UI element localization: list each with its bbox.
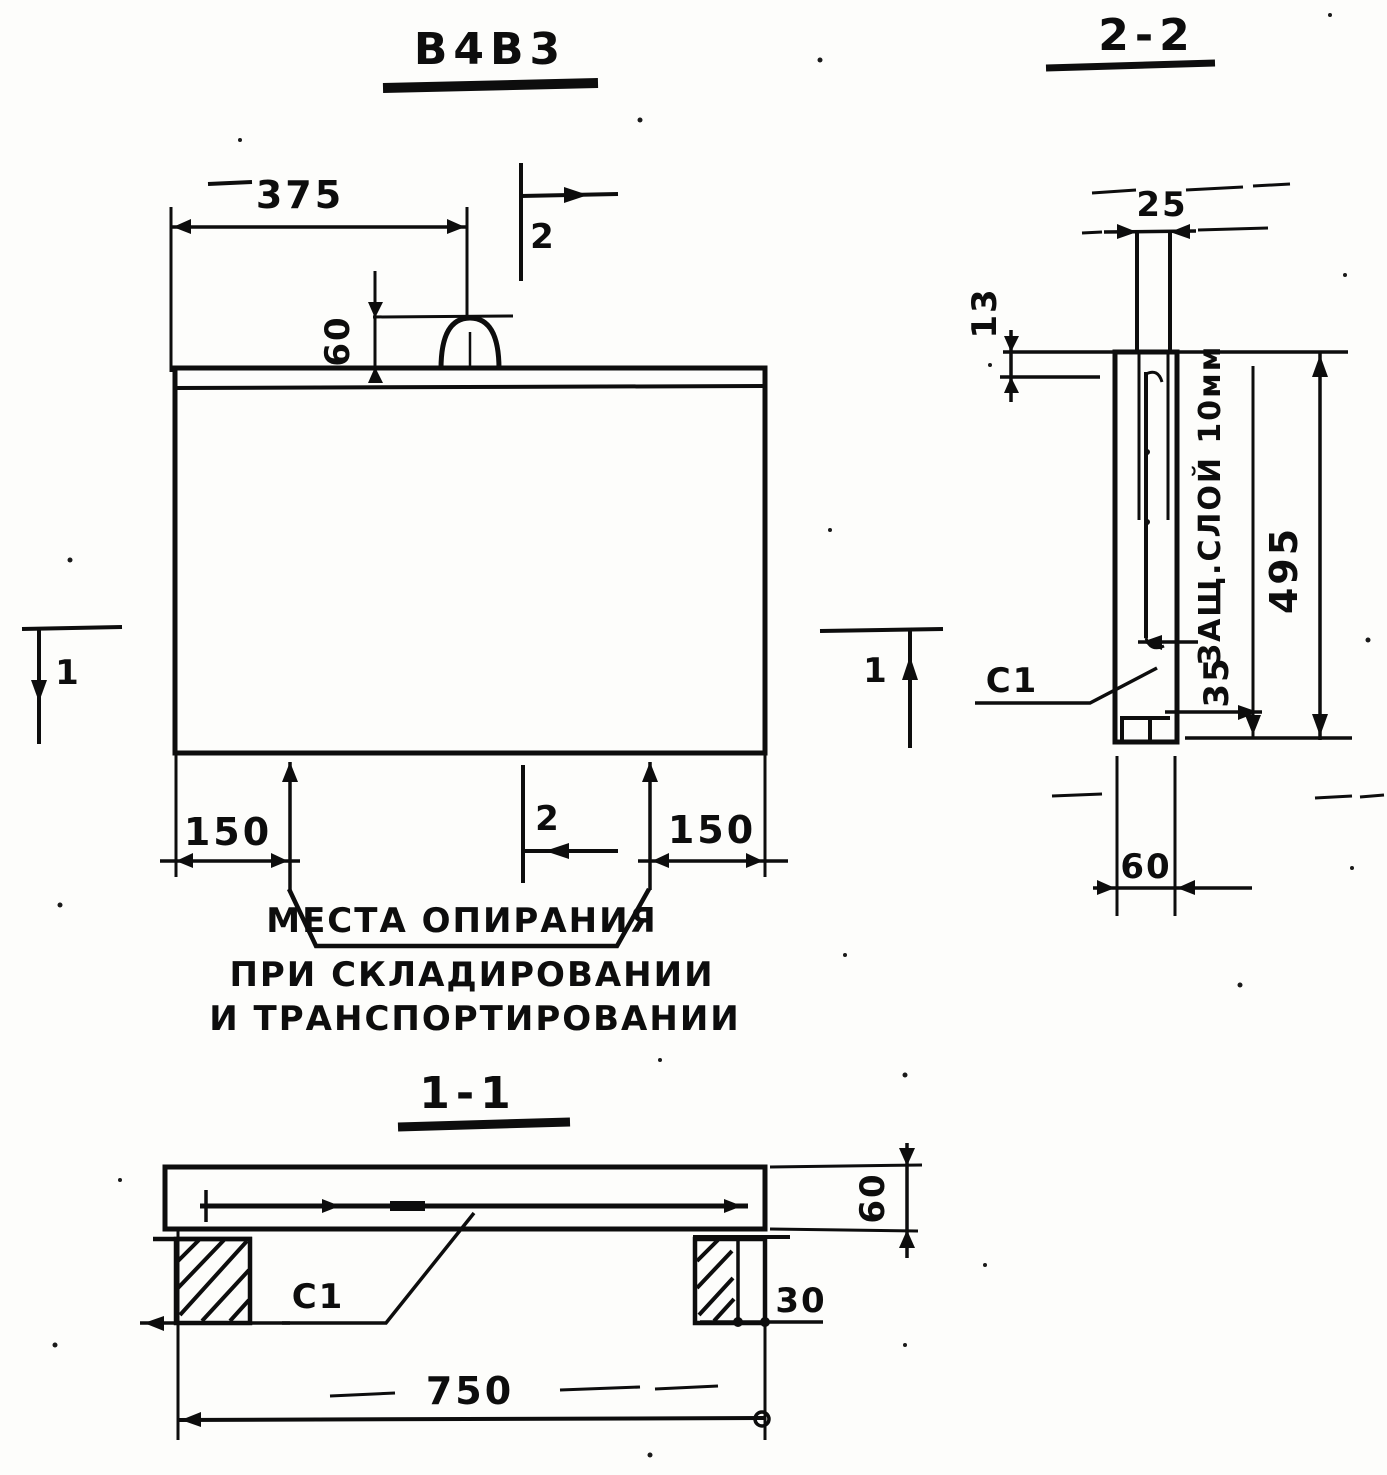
support-note-line1: МЕСТА ОПИРАНИЯ	[266, 901, 658, 941]
section-2-2-title: 2-2	[1098, 10, 1196, 61]
dim-13-label: 13	[965, 287, 1005, 338]
section-2-2-title-underline	[1046, 63, 1215, 68]
section-2-bottom-label: 2	[535, 799, 561, 839]
rebar-tick	[1144, 519, 1150, 525]
dim-375-arrow-right	[447, 219, 465, 234]
stray-dash	[330, 1393, 395, 1396]
support-note-line2: ПРИ СКЛАДИРОВАНИИ	[229, 955, 714, 995]
section-1-left-arrow-line	[22, 627, 122, 629]
stray-dash	[1315, 796, 1352, 798]
dim-495-label: 495	[1262, 526, 1306, 614]
dim-13-arrow-bottom	[1004, 377, 1019, 393]
stray-dash	[1186, 187, 1243, 190]
stray-dash	[1253, 184, 1290, 186]
section-2-top-arrowhead	[564, 187, 588, 203]
stray-dash	[655, 1386, 718, 1389]
dim-35-label: 35	[1197, 656, 1237, 707]
support-note-line3: И ТРАНСПОРТИРОВАНИИ	[209, 999, 740, 1039]
dim-375-arrow-left	[173, 219, 191, 234]
panel-outline	[175, 368, 765, 753]
stray-dash	[560, 1387, 640, 1390]
dim-750-label: 750	[426, 1369, 514, 1413]
section-1-1-title: 1-1	[419, 1068, 517, 1119]
dim-30-label: 30	[775, 1281, 826, 1321]
main-view-title-underline	[383, 83, 598, 88]
dim-60p-label: 60	[853, 1172, 893, 1223]
dim-495-arrow-bottom	[1312, 714, 1328, 736]
dim-150-left-label: 150	[184, 810, 272, 854]
stray-dash	[208, 182, 252, 184]
section-1-right-arrow-line	[820, 629, 943, 631]
dim-25-label: 25	[1136, 185, 1187, 225]
dim-60p-arrow-top	[899, 1148, 915, 1166]
rebar-tick	[1144, 449, 1150, 455]
section-1-1-view: 1-1 С1	[140, 1068, 922, 1440]
support-right-hatch	[697, 1240, 734, 1321]
support-right-up-arrow	[642, 762, 658, 782]
dim-25-arrow-right	[1170, 224, 1190, 239]
section-1-left-label: 1	[55, 653, 81, 693]
dim-60p-ext-top	[770, 1165, 922, 1167]
dim-60p-ext-bottom	[770, 1229, 918, 1231]
dim-60s-arrow-right	[1177, 880, 1195, 895]
rebar-c1-label-1-1: С1	[292, 1277, 345, 1317]
dim-13-arrow-top	[1004, 336, 1019, 352]
support-left-hatch	[178, 1240, 249, 1321]
panel-top-edge-line	[175, 386, 765, 388]
dim-750-arrow-left	[181, 1412, 201, 1427]
section-1-left-arrowhead	[31, 680, 47, 702]
rebar-arrowhead-b	[724, 1199, 742, 1213]
dim-60-ext-top	[373, 316, 513, 317]
dim-60s-arrow-left	[1097, 880, 1115, 895]
dim-60p-arrow-bottom	[899, 1230, 915, 1248]
dim-150-right-arrow-a	[652, 853, 669, 868]
section-1-right-label: 1	[863, 651, 889, 691]
dim-150-left-arrow-b	[271, 853, 288, 868]
section-2-bottom-arrowhead	[545, 843, 569, 859]
support-left-up-arrow	[282, 762, 298, 782]
dim-150-left-arrow-a	[176, 853, 193, 868]
dim-375-label: 375	[256, 173, 344, 217]
rebar-c1-top-hook	[1146, 372, 1162, 382]
blueprint-svg: В4В3 375 60 2 2 1	[0, 0, 1387, 1475]
dim-35-arrow-bottom	[1245, 715, 1261, 735]
dim-60-label: 60	[318, 315, 358, 366]
dim-25-ext-dash-right	[1198, 228, 1268, 230]
dim-25-ext-dash-left	[1082, 232, 1102, 233]
main-view: В4В3 375 60 2 2 1	[22, 24, 943, 1039]
stray-dash	[1052, 794, 1102, 796]
dim-150-right-arrow-b	[746, 853, 763, 868]
dim-25-arrow-left	[1117, 224, 1137, 239]
rebar-arrowhead-a	[322, 1199, 340, 1213]
stray-dash	[1092, 190, 1136, 193]
main-view-title: В4В3	[414, 24, 566, 75]
blueprint-sheet: В4В3 375 60 2 2 1	[0, 0, 1387, 1475]
dim-60s-label: 60	[1120, 847, 1171, 887]
dim-495-arrow-top	[1312, 355, 1328, 377]
section-1-1-title-underline	[398, 1122, 570, 1127]
rebar-c1-label-2-2: С1	[986, 661, 1039, 701]
dim-150-right-label: 150	[668, 808, 756, 852]
support-left-bottom-tick	[144, 1316, 164, 1331]
stray-dash	[1360, 795, 1384, 797]
slab-section-outline	[165, 1167, 765, 1229]
section-2-top-label: 2	[530, 217, 556, 257]
dim-750-line	[178, 1418, 765, 1420]
section-1-right-arrowhead	[902, 656, 918, 680]
section-2-2-view: 2-2 25 13	[965, 10, 1384, 916]
cover-note-label: ЗАЩ.СЛОЙ 10мм	[1192, 345, 1228, 665]
dim-30-dot-a	[733, 1317, 743, 1327]
